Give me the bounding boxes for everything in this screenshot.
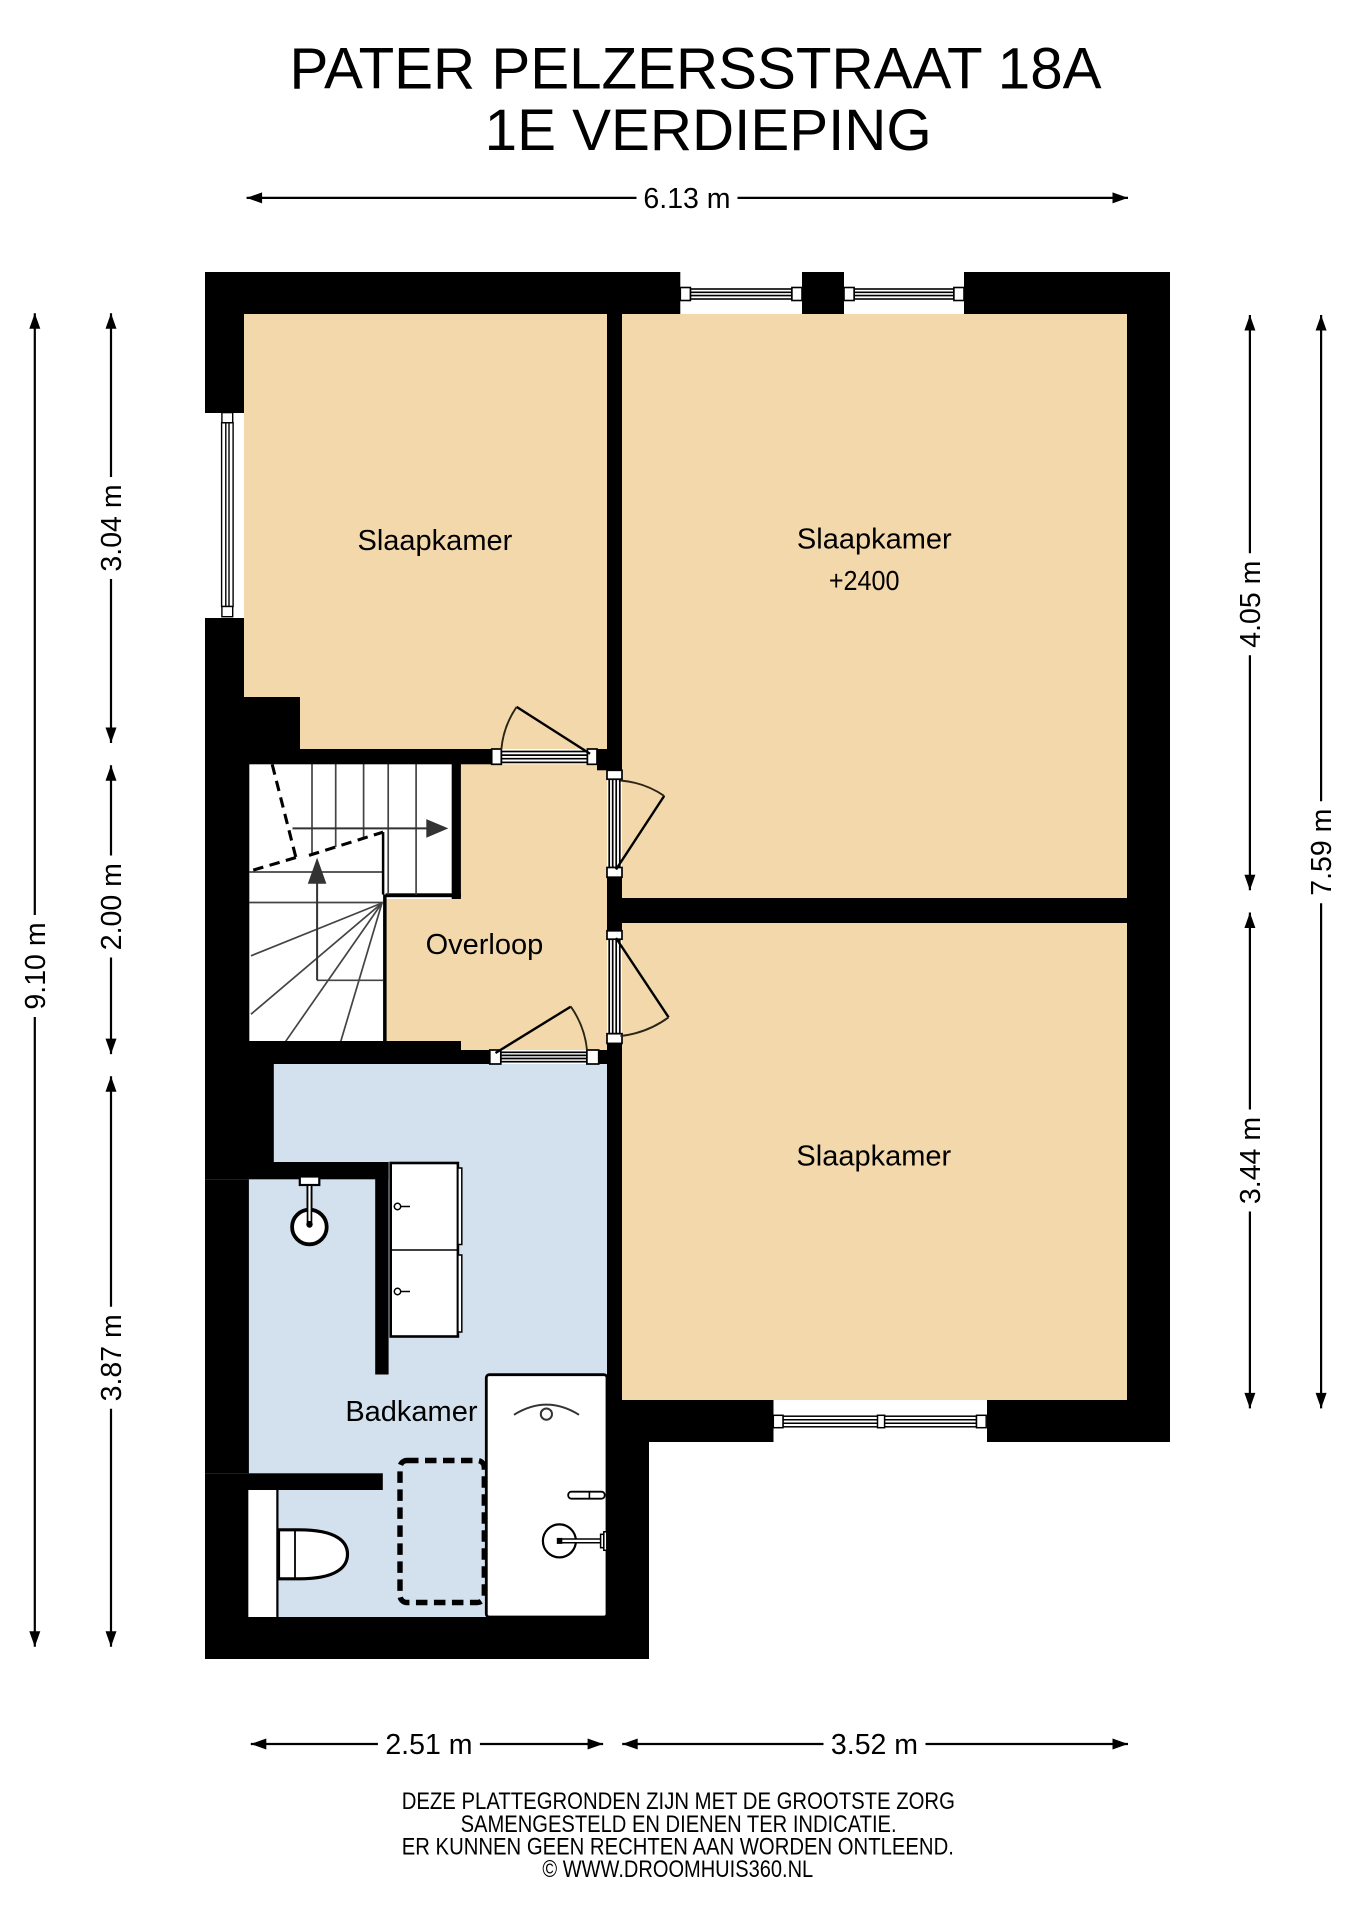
svg-text:PATER PELZERSSTRAAT 18A: PATER PELZERSSTRAAT 18A bbox=[289, 36, 1101, 101]
svg-text:9.10 m: 9.10 m bbox=[20, 922, 52, 1009]
svg-text:2.00 m: 2.00 m bbox=[96, 863, 128, 950]
svg-text:3.87 m: 3.87 m bbox=[96, 1314, 128, 1401]
svg-text:7.59 m: 7.59 m bbox=[1306, 809, 1338, 896]
svg-text:Slaapkamer: Slaapkamer bbox=[796, 1141, 951, 1173]
svg-text:Badkamer: Badkamer bbox=[345, 1396, 478, 1428]
svg-text:2.51 m: 2.51 m bbox=[385, 1729, 472, 1761]
svg-text:Slaapkamer: Slaapkamer bbox=[358, 525, 513, 557]
svg-text:3.04 m: 3.04 m bbox=[96, 484, 128, 571]
svg-text:Slaapkamer: Slaapkamer bbox=[797, 524, 952, 556]
svg-text:6.13 m: 6.13 m bbox=[643, 183, 730, 215]
svg-text:© WWW.DROOMHUIS360.NL: © WWW.DROOMHUIS360.NL bbox=[542, 1856, 813, 1883]
svg-text:3.52 m: 3.52 m bbox=[831, 1729, 918, 1761]
svg-text:3.44 m: 3.44 m bbox=[1235, 1117, 1267, 1204]
svg-text:1E VERDIEPING: 1E VERDIEPING bbox=[485, 98, 932, 163]
svg-text:+2400: +2400 bbox=[829, 565, 900, 596]
svg-text:4.05 m: 4.05 m bbox=[1235, 561, 1267, 648]
svg-text:Overloop: Overloop bbox=[426, 929, 544, 961]
